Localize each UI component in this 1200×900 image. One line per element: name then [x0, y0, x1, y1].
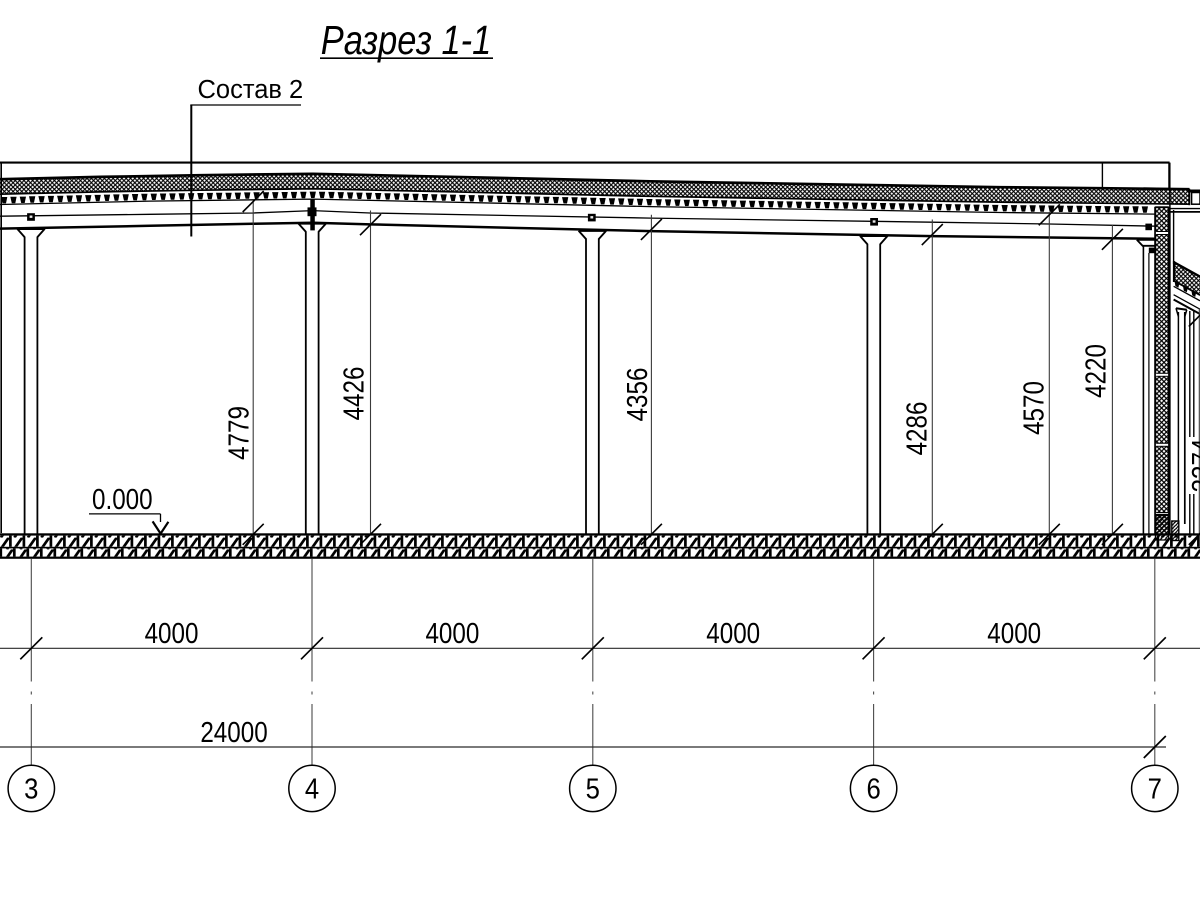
svg-text:4000: 4000 [425, 617, 479, 649]
svg-text:6: 6 [866, 772, 880, 805]
svg-text:4779: 4779 [223, 406, 255, 460]
svg-text:4286: 4286 [901, 402, 933, 456]
svg-text:24000: 24000 [200, 716, 267, 748]
svg-text:4000: 4000 [145, 617, 199, 649]
svg-text:4356: 4356 [621, 368, 653, 422]
svg-text:4000: 4000 [706, 617, 760, 649]
svg-text:Разрез 1-1: Разрез 1-1 [321, 18, 492, 63]
svg-text:5: 5 [586, 772, 600, 805]
svg-text:4570: 4570 [1018, 381, 1050, 435]
svg-text:4220: 4220 [1080, 344, 1112, 398]
svg-text:4000: 4000 [987, 617, 1041, 649]
svg-text:4426: 4426 [338, 367, 370, 421]
svg-text:3374: 3374 [1186, 439, 1200, 493]
svg-text:4: 4 [305, 772, 319, 805]
svg-text:0.000: 0.000 [92, 483, 153, 515]
svg-text:7: 7 [1148, 772, 1162, 805]
svg-text:Состав 2: Состав 2 [198, 76, 304, 104]
svg-text:3: 3 [24, 772, 38, 805]
